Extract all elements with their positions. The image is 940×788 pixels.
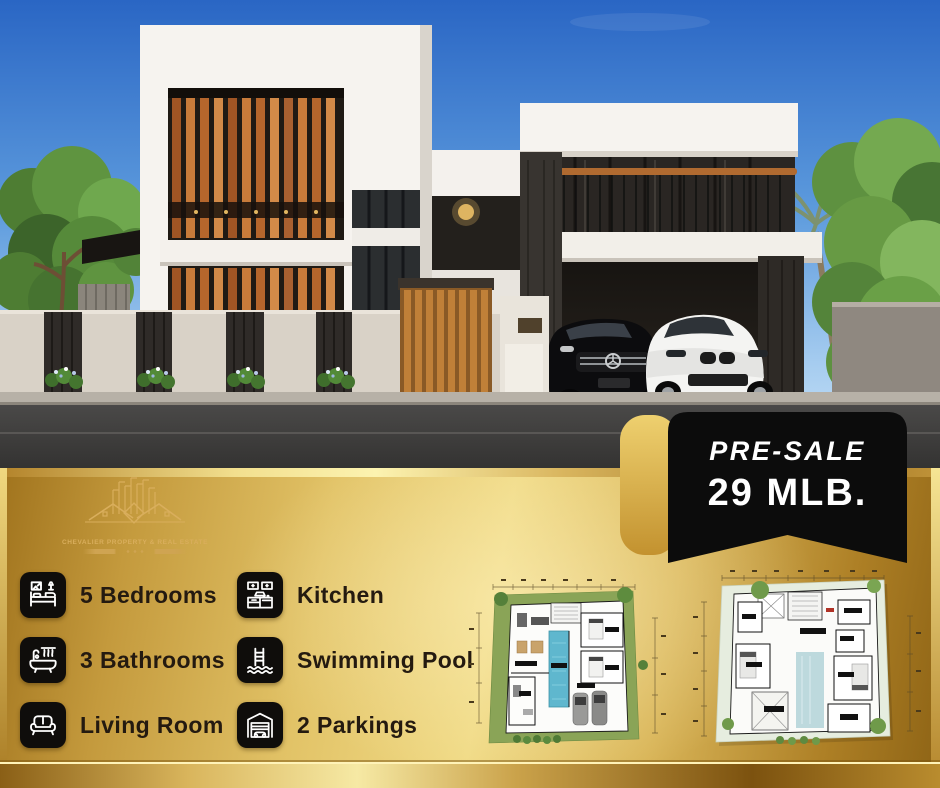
mailbox [518, 318, 542, 333]
feature-label: 3 Bathrooms [80, 647, 225, 674]
price-label: 29 MLB. [668, 472, 907, 515]
upper-floor-plan [688, 566, 928, 766]
gold-frame-bottom [0, 764, 940, 788]
gold-frame-left [0, 468, 7, 788]
bed-icon [20, 572, 66, 618]
feature-living-room: Living Room [20, 702, 224, 748]
feature-label: Kitchen [297, 582, 384, 609]
garage-icon [237, 702, 283, 748]
wooden-gate [398, 278, 494, 396]
ground-floor-plan [465, 573, 670, 753]
gold-info-panel: CHEVALIER PROPERTY & REAL ESTATE 5 Bedro… [0, 468, 940, 788]
real-estate-flyer: CHEVALIER PROPERTY & REAL ESTATE 5 Bedro… [0, 0, 940, 788]
feature-label: 5 Bedrooms [80, 582, 217, 609]
pool-ladder-icon [237, 637, 283, 683]
feature-bedrooms: 5 Bedrooms [20, 572, 217, 618]
gold-frame-right [931, 468, 940, 788]
company-logo: CHEVALIER PROPERTY & REAL ESTATE [55, 474, 215, 554]
kitchen-icon [237, 572, 283, 618]
logo-emblem-icon [75, 474, 195, 532]
feature-kitchen: Kitchen [237, 572, 384, 618]
bathtub-icon [20, 637, 66, 683]
feature-label: Swimming Pool [297, 647, 473, 674]
logo-divider [83, 549, 187, 554]
feature-parkings: 2 Parkings [237, 702, 417, 748]
feature-label: 2 Parkings [297, 712, 417, 739]
feature-bathrooms: 3 Bathrooms [20, 637, 225, 683]
feature-label: Living Room [80, 712, 224, 739]
house-left-block [140, 25, 432, 337]
company-name: CHEVALIER PROPERTY & REAL ESTATE [55, 539, 215, 546]
sofa-icon [20, 702, 66, 748]
feature-swimming-pool: Swimming Pool [237, 637, 473, 683]
presale-label: PRE-SALE [668, 436, 907, 467]
house-render-image [0, 0, 940, 470]
